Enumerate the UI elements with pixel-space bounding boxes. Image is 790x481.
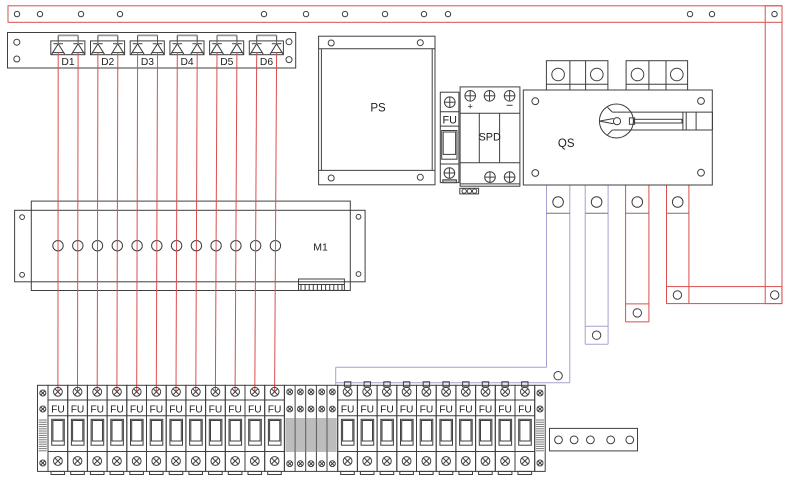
svg-text:SPD: SPD	[479, 132, 501, 144]
svg-text:M1: M1	[313, 241, 328, 253]
svg-text:FU: FU	[341, 405, 355, 416]
svg-text:FU: FU	[110, 405, 124, 416]
svg-text:FU: FU	[400, 405, 414, 416]
svg-text:FU: FU	[479, 405, 493, 416]
svg-text:FU: FU	[189, 405, 203, 416]
svg-text:D6: D6	[260, 57, 273, 68]
svg-text:+: +	[467, 102, 473, 113]
svg-text:PS: PS	[370, 102, 386, 114]
svg-text:QS: QS	[558, 138, 575, 150]
svg-text:FU: FU	[518, 405, 532, 416]
svg-text:FU: FU	[209, 405, 223, 416]
svg-text:FU: FU	[150, 405, 164, 416]
svg-text:FU: FU	[420, 405, 434, 416]
svg-text:FU: FU	[71, 405, 85, 416]
svg-text:FU: FU	[442, 114, 456, 126]
svg-text:FU: FU	[90, 405, 104, 416]
svg-text:FU: FU	[380, 405, 394, 416]
svg-text:FU: FU	[439, 405, 453, 416]
svg-text:FU: FU	[228, 405, 242, 416]
svg-text:FU: FU	[248, 405, 262, 416]
svg-text:D5: D5	[220, 57, 233, 68]
svg-text:FU: FU	[459, 405, 473, 416]
svg-text:D3: D3	[141, 57, 154, 68]
svg-text:FU: FU	[51, 405, 65, 416]
svg-text:D4: D4	[181, 57, 194, 68]
svg-text:FU: FU	[169, 405, 183, 416]
svg-text:FU: FU	[268, 405, 282, 416]
svg-text:D1: D1	[61, 57, 74, 68]
svg-text:FU: FU	[360, 405, 374, 416]
svg-text:FU: FU	[498, 405, 512, 416]
svg-text:D2: D2	[101, 57, 114, 68]
svg-text:FU: FU	[130, 405, 144, 416]
